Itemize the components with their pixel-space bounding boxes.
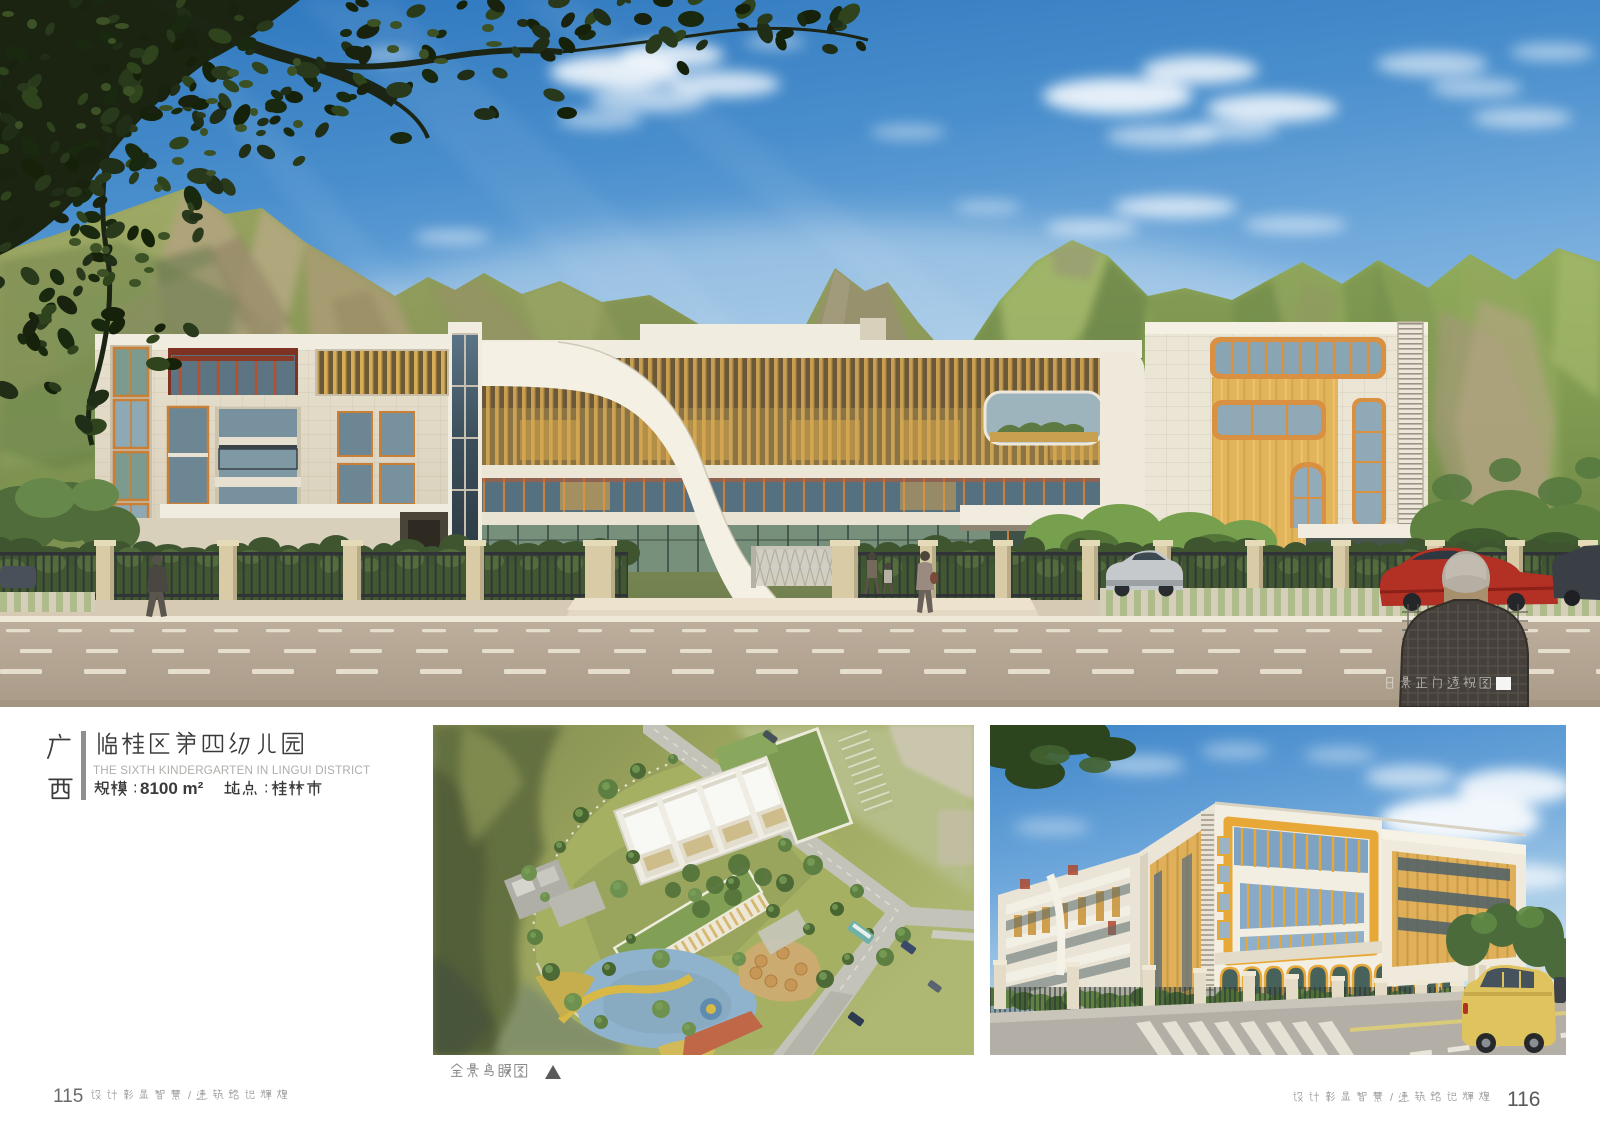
svg-text:/: / [1390, 1092, 1394, 1104]
svg-text:8100 m²: 8100 m² [140, 779, 204, 798]
svg-text:THE SIXTH KINDERGARTEN IN LING: THE SIXTH KINDERGARTEN IN LINGUI DISTRIC… [93, 764, 370, 777]
svg-text:116: 116 [1507, 1088, 1540, 1111]
svg-text:115: 115 [53, 1086, 83, 1107]
svg-text:/: / [188, 1090, 192, 1102]
